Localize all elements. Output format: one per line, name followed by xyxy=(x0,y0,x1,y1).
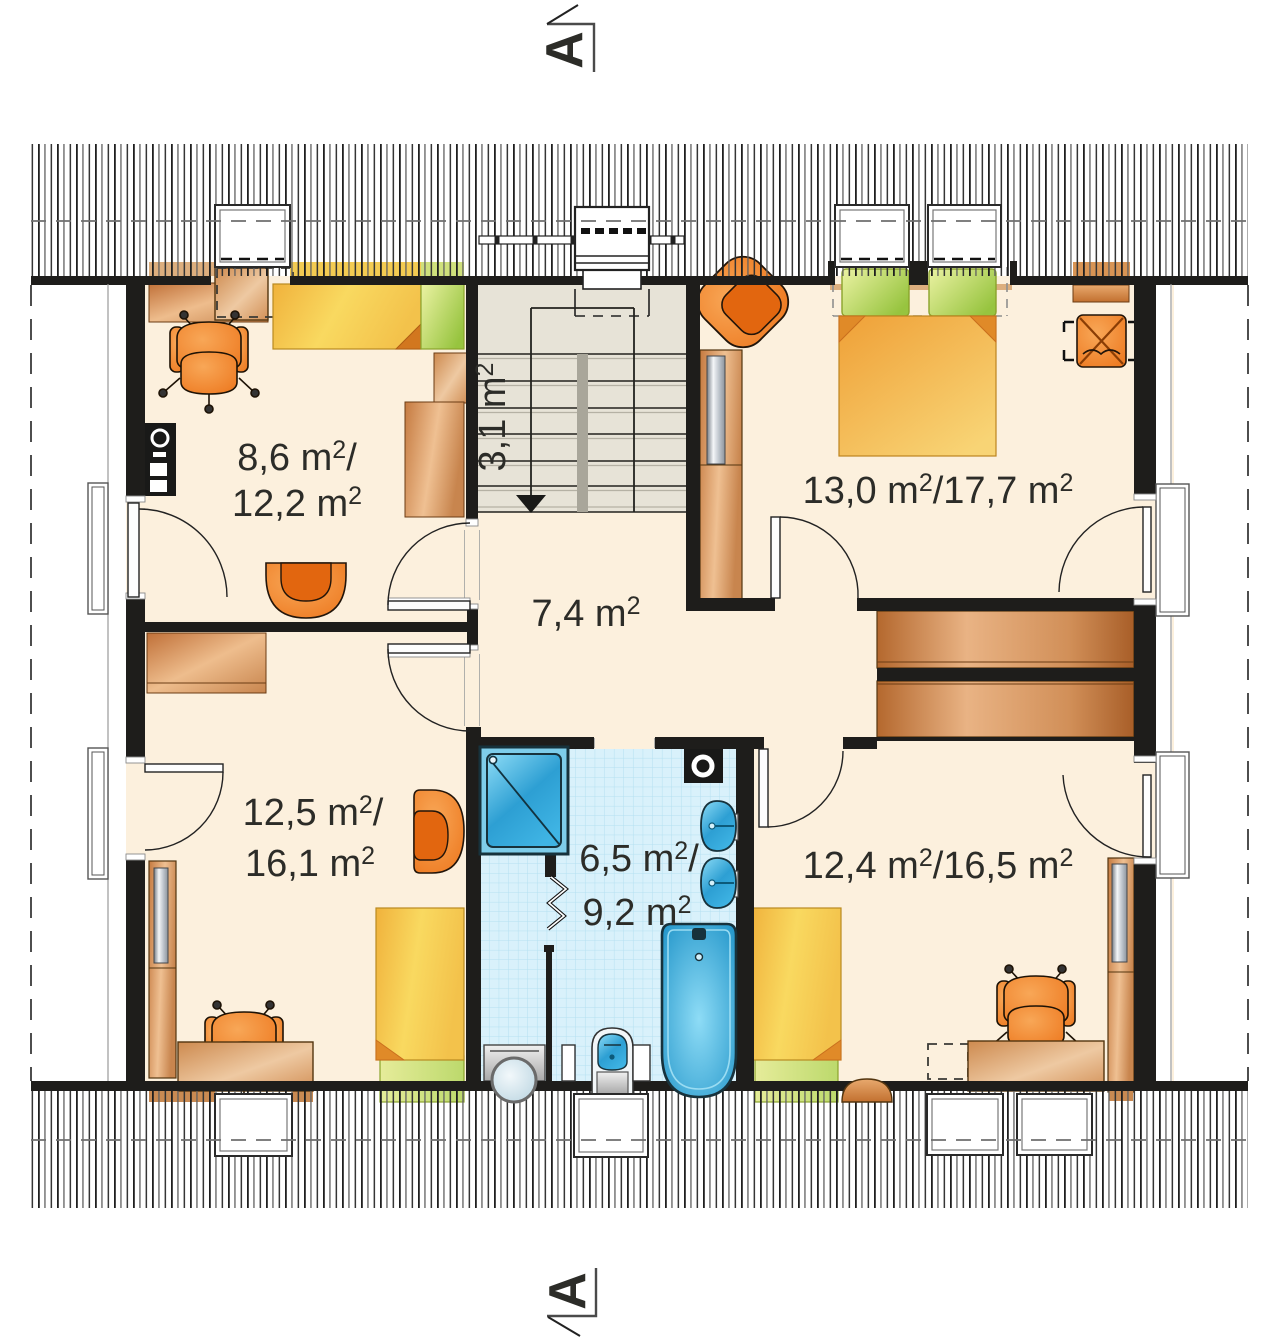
svg-text:9,2 m2: 9,2 m2 xyxy=(583,891,692,934)
svg-text:12,2 m2: 12,2 m2 xyxy=(232,482,362,525)
svg-text:12,4 m2/16,5 m2: 12,4 m2/16,5 m2 xyxy=(803,844,1074,887)
svg-text:A: A xyxy=(536,31,594,69)
svg-text:3,1 m2: 3,1 m2 xyxy=(471,363,514,472)
svg-text:16,1 m2: 16,1 m2 xyxy=(245,842,375,885)
svg-text:7,4 m2: 7,4 m2 xyxy=(532,592,641,635)
svg-text:A: A xyxy=(539,1272,597,1310)
svg-text:13,0 m2/17,7 m2: 13,0 m2/17,7 m2 xyxy=(803,469,1074,512)
